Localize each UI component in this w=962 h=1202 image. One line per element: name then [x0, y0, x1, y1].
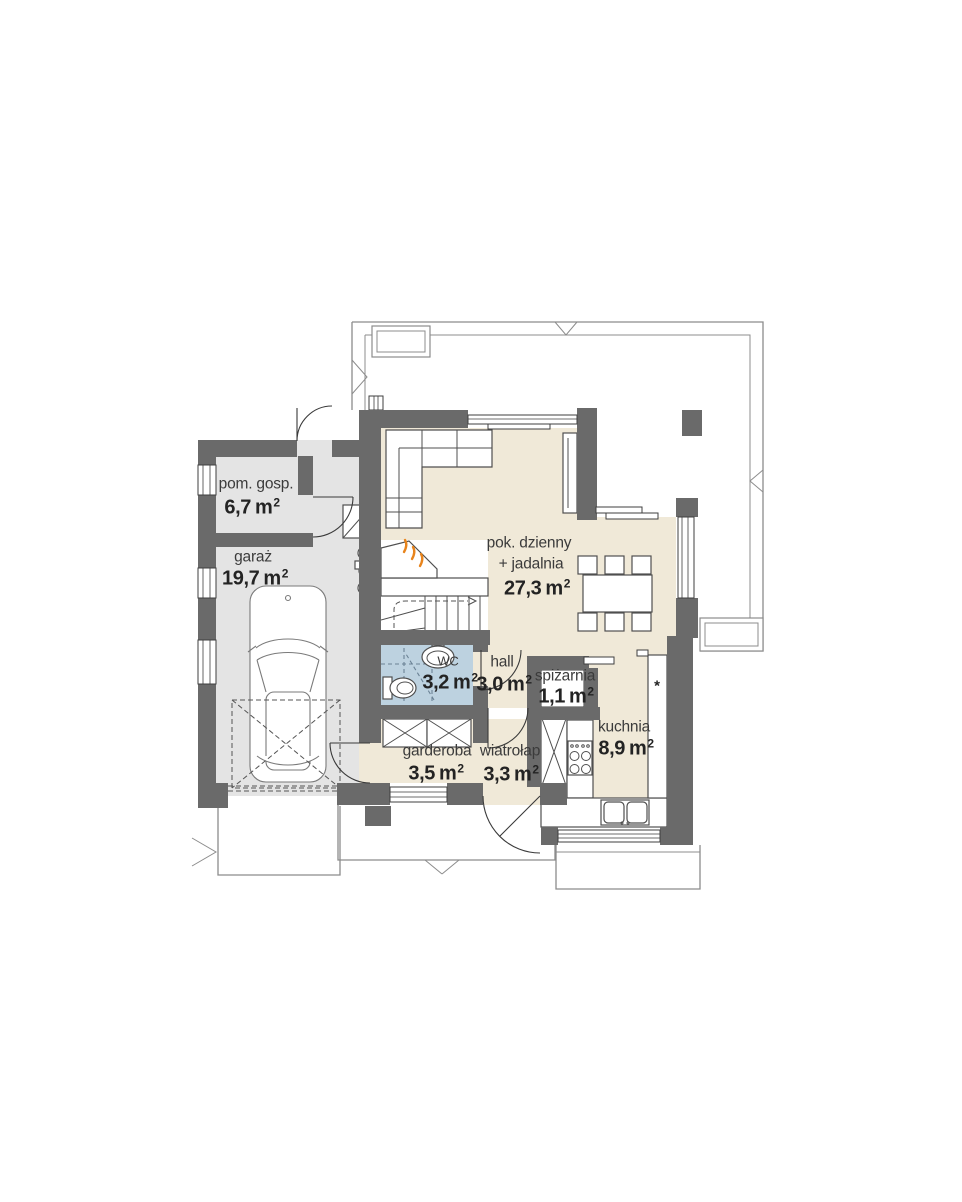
floor-plan-page: pom. gosp. 6,7m2 garaż 19,7m2 pok. dzien… [0, 0, 962, 1202]
side-entry-door [297, 406, 332, 441]
garderoba-closets [383, 719, 471, 747]
dining-set [578, 556, 652, 631]
stove [568, 741, 592, 775]
tv-cabinet [563, 433, 577, 513]
porch-column [365, 806, 391, 826]
pantry-sliding-door [584, 657, 614, 664]
roof-vent [369, 396, 383, 410]
terrace-sliding-door [596, 507, 642, 513]
pantry-interior [541, 670, 584, 707]
wiatrolap-wardrobe [541, 716, 567, 788]
terrace-column [682, 410, 702, 436]
car [248, 586, 328, 782]
floor-plan-svg [0, 0, 962, 1202]
toilet-bowl [390, 678, 416, 698]
